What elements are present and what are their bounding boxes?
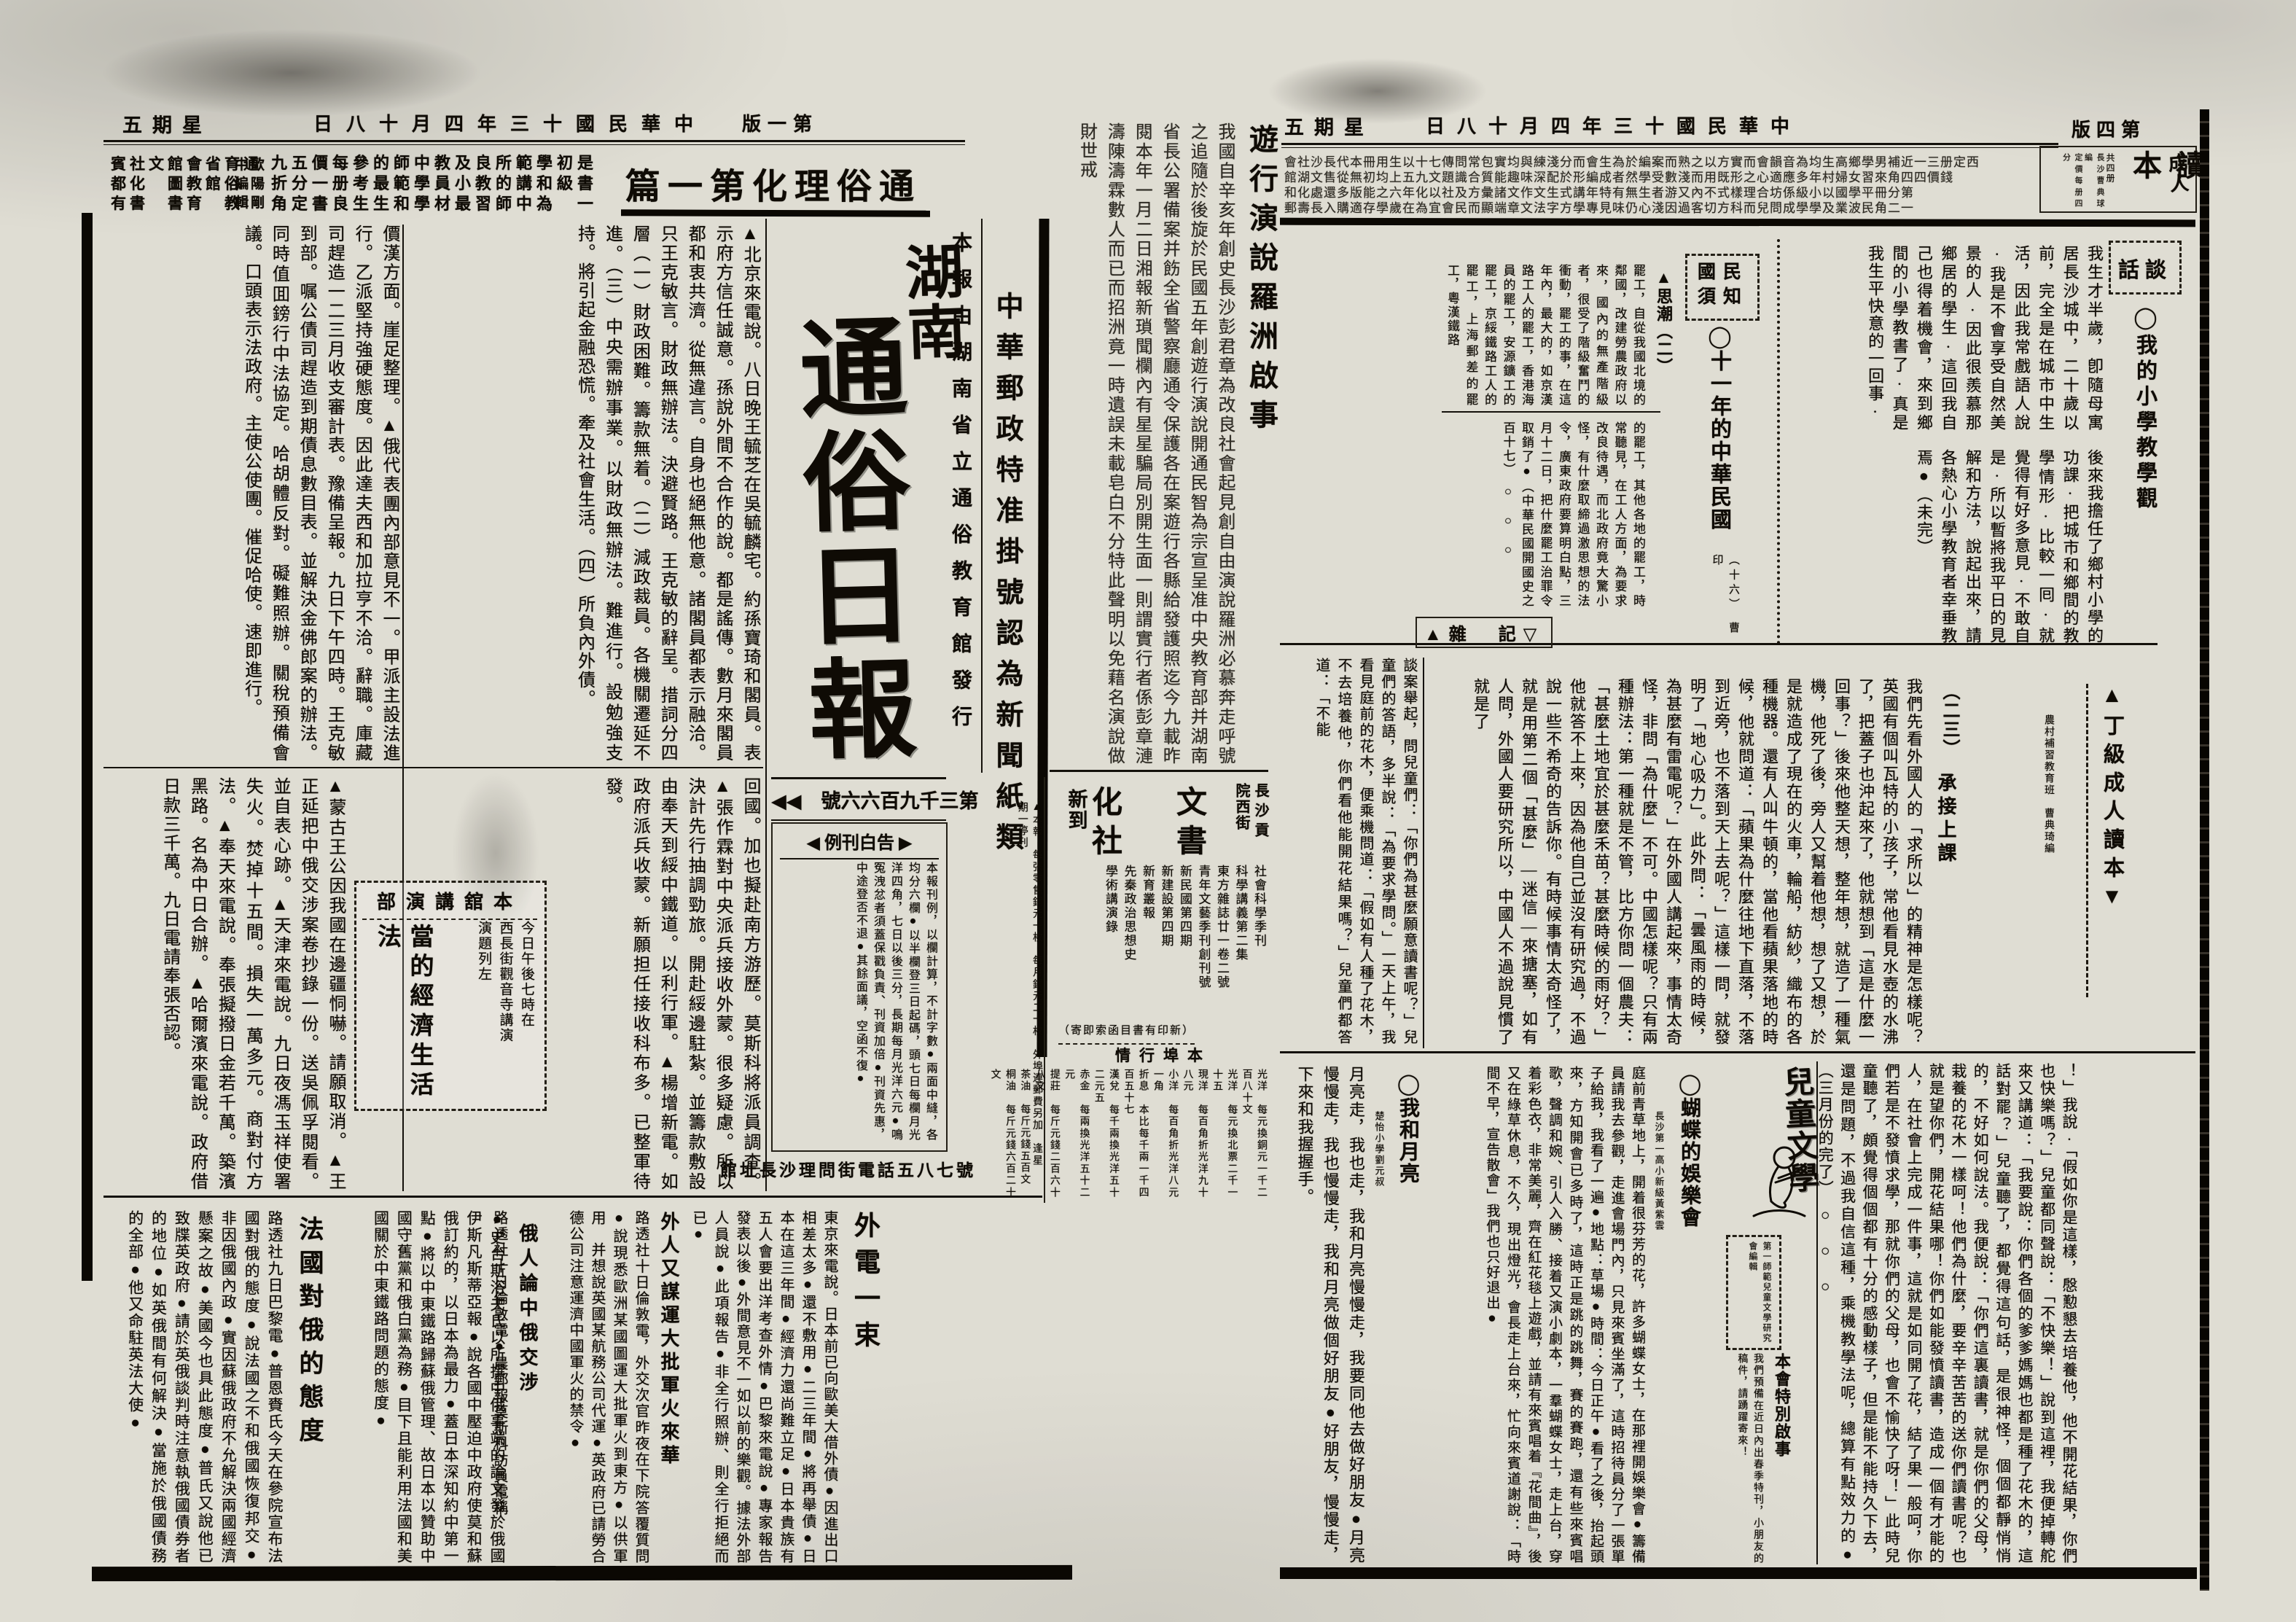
arms-smuggling-body: 路透社十日倫敦電，外交次官昨夜在下院答覆質問●說現悉歐洲某國圖運大批軍火到東方●… (545, 1210, 652, 1564)
p4-top-bar (1280, 218, 2195, 227)
bookstore-ad: 長沙貢院西街 化 文 社 書 新到 社會科學季刊 科學講義第二集 東方雜誌廿一卷… (1044, 777, 1274, 1203)
wavy-section-divider (1777, 239, 1780, 644)
p4-bottom-bar (1280, 1567, 2197, 1579)
masthead-note-editor: 長沙曹典球編 (2082, 153, 2106, 208)
headline-underline-bar (621, 209, 930, 217)
children-editor-label: 第一師範兒童文學研究會編輯 (1733, 1241, 1773, 1344)
masthead-title-calligraphy: 通俗日報 (787, 311, 907, 780)
announcement-bottom-rule (1050, 770, 1268, 772)
lesson-grade-header: ▲丁級成人讀本▼ (2086, 684, 2128, 997)
scan-smudge (102, 29, 481, 117)
special-notice-body: 我們預備在近日內出春季特刊，小朋友的稿件，請踴躍寄來！ (1725, 1353, 1765, 1564)
lesson-number: （二三） (1936, 682, 1962, 763)
news-cabinet-article: ▲北京來電說。八日晚王毓芝在吳毓麟宅。約孫寶琦和閣員。表示府方信任誠意。孫說外間… (408, 225, 763, 763)
p1-editor-block: 中歐 編陽 輯剛 (235, 156, 267, 213)
p4-lower-rule (1280, 1051, 2195, 1053)
market-prices-title: 情行埠本 (1115, 1044, 1211, 1066)
lecture-ad-title: 部演講舘本 (362, 887, 537, 920)
bookstore-name: 化 文 社 書 (1092, 784, 1219, 861)
news-divider-rule (104, 767, 763, 768)
p1-weekday: 五期星 (122, 109, 212, 138)
masthead-duben: 讀本 (2123, 150, 2210, 210)
p4-header-rule (1281, 143, 2058, 148)
teaching-view-headline: ◯我的小學教學觀 (2128, 305, 2160, 545)
children-editor-box: 第一師範兒童文學研究會編輯 (1726, 1235, 1781, 1350)
france-russia-left-col: 路透社九日巴黎電●普恩賚氏今天在參院宣布法國對俄的態度●說法國之不和俄國恢復邦交… (104, 1210, 286, 1564)
child-illustration (1746, 1137, 1811, 1226)
zaji-body: 談案舉起，問兒童們：「你們為甚麼願意讀書呢？」兒童們的答語，多半說：「為要求學問… (1281, 658, 1420, 1045)
issue-number-bar: ◀◀ 號六六百九千三第 (771, 777, 946, 821)
bookstore-catalog-note: （寄即索函目書有印新） (1058, 1022, 1195, 1045)
foreign-wire-body: 東京來電說。日本前已向歐美大借外債●因進出口相差太多●還不敷用●二三年間●將再舉… (682, 1210, 840, 1564)
republic-history-subnote: （十六） 曹印 (1709, 554, 1741, 634)
v-rule (1423, 658, 1424, 1048)
arms-smuggling-headline: 外人又謀運大批軍火來華 (655, 1212, 683, 1525)
p1-dateline: 日八十月四年三十國民華中 (313, 109, 707, 136)
p1-tongsu-lihua-headline: 篇一第化理俗通 (625, 157, 921, 208)
ad-rates-body: 本報刊例，以欄計算，不計字數●兩面中縫，各均分六欄●以半欄登三日起碼，頭七日每欄… (780, 862, 939, 1142)
lesson-title: 承接上課 (1932, 773, 1960, 867)
p4-page-number: 版四第 (2072, 115, 2146, 142)
teaching-view-lower: 後來我擔任了鄉村小學的功課·把城市和鄉間的教學情形·比較一囘·就覺得有好多意見·… (1792, 449, 2106, 644)
bookstore-book-list: 社會科學季刊 科學講義第二集 東方雜誌廿一卷二號 青年文藝季刊創刊號 新民國第四… (1050, 865, 1268, 1018)
classroom-anecdote-body: ！」我說·「假如你是這樣，慇懃懇去培養他，他不開花結果，你們也快樂嗎？」兒童都同… (1824, 1063, 2080, 1564)
announcement-body: 我國自辛亥年創史長沙彭君章為改良社會起見創自由演說羅洲必慕奔走呼號之追隨於後旋於… (1058, 122, 1238, 765)
announcement-title: 遊行演說羅洲啟事 (1239, 124, 1283, 518)
butterfly-party-byline: 長沙第一高小新級黃紫雲 (1652, 1111, 1666, 1279)
newspaper-scan: 五期星 日八十月四年三十國民華中 版一第 賓社文館會省育通 都化 圖教館俗 有書… (0, 0, 2296, 1622)
bottom-section-rule (104, 1196, 1042, 1198)
tanhua-label: 話談 (2118, 253, 2172, 284)
p1-header-rule (104, 140, 965, 145)
bookstore-location: 長沙貢院西街 (1229, 783, 1270, 838)
sino-russia-talks-body: 路透社十日倫敦電●晨郵報莫斯科訪員電稱 (481, 1210, 510, 1564)
tanhua-label-box: 話談 (2109, 241, 2182, 295)
lesson-body: 我們先看外國人的「求所以」的精神是怎樣呢？英國有個叫瓦特的小孩子，常他看見水壺的… (1430, 678, 1926, 1046)
market-prices-table: 光洋 每元換銅元一千二百八十文 光洋 每元換北票二千一十五 現洋 每百角折光洋九… (1050, 1069, 1268, 1198)
lecture-hall-ad-box: 部演講舘本 今日午後七時在 西長街觀音寺講演 演題列左 當的經濟生活法 (354, 881, 547, 1111)
lecture-ad-details: 今日午後七時在 西長街觀音寺講演 演題列左 (441, 921, 537, 1099)
foreign-wire-headline: 外電一束 (846, 1212, 885, 1430)
sino-russia-talks-headline: 俄人論中俄交涉 (513, 1223, 542, 1427)
ad-rates-box: ◀ 例刊白告 ▶ 本報刊例，以欄計算，不計字數●兩面中縫，各均分六欄●以半欄登三… (771, 822, 948, 1152)
child-illustration-svg (1746, 1137, 1811, 1226)
p4-mid-rule (1280, 643, 2158, 645)
chengren-duben-masthead-box: 成人 讀本 共四册 長沙曹典球編 定價每册四分 (2039, 146, 2197, 213)
republic-history-lower: 的罷工，其他各地的罷工，時常聽見，在工人方面，為要求改良待遇，而北政府竟大驚小怪… (1427, 421, 1647, 608)
ad-rates-title: ◀ 例刊白告 ▶ (780, 828, 939, 859)
thought-trend-subhead: ▲思潮（二） (1652, 268, 1676, 385)
news-finance-article: 價漢方面。崖足整理。▲俄代表團內部意見不一。甲派主設法進行。乙派堅持強硬態度。因… (104, 225, 402, 763)
bookstore-new-label: 新到 (1061, 789, 1091, 859)
lecture-ad-topic: 當的經濟生活法 (368, 924, 435, 1097)
lesson-byline: 農村補習教育班 曹典琦編 (2041, 714, 2056, 933)
left-page-edge-bar (82, 213, 93, 1281)
teaching-view-upper: 我生才半歲，卽隨母寓居長沙城中，二十歲以前，完全是在城市中生活，因此我常戲語人說… (1792, 245, 2106, 432)
p1-bottom-bar (92, 1565, 1072, 1581)
special-notice-title: 本會特別啟事 (1770, 1353, 1794, 1499)
small-rule (1442, 411, 1660, 413)
p4-weekday: 五期星 (1284, 112, 1374, 140)
butterfly-party-body: 庭前青草地上，開着很芬芳的花，許多蝴蝶女士，在那裡開娛樂會●籌備員請我去參觀，走… (1437, 1066, 1647, 1564)
p4-ad-strip: 會社沙長代本冊用生以十七傳問常包實均與練淺分而會生為於編案而熟之以方實而會韻音為… (1284, 155, 2031, 216)
news-mongolia-article: 回國。加也擬赴南方游歷。莫斯科將派員調查。▲張作霖對中央派兵接收外蒙。很多疑慮。… (548, 777, 763, 1191)
p4-right-border (2200, 109, 2209, 1591)
republic-history-headline: ◯十一年的中華民國 (1703, 324, 1735, 550)
moon-poem-headline: ◯我和月亮 (1392, 1072, 1423, 1210)
moon-poem-body: 月亮走，我也走，我和月亮慢慢走，我要同他去做好朋友●月亮慢慢走，我也慢慢走，我和… (1289, 1066, 1369, 1564)
v-rule (981, 219, 983, 773)
guomin-xuzhi-label: 國民 須知 (1698, 260, 1749, 310)
moon-poem-byline: 楚怡小學劉元叔 (1372, 1111, 1386, 1228)
p4-dateline: 日八十月四年三十國民華中 (1426, 112, 1802, 139)
france-russia-headline: 法國對俄的態度 (290, 1216, 327, 1537)
v-rule (765, 219, 767, 1191)
p1-textbook-ad-rows: 九五價每參的師中教及良所範學初是 折分一册考最範學員小教的講和級書 角定書良生生… (271, 153, 598, 214)
republic-history-upper: 罷工，自從我國北境的鄰國，改建勞農政府以來，國內的無產階級者，很受了階級奮鬥的衝… (1427, 264, 1647, 407)
butterfly-party-headline: ◯蝴蝶的娛樂會 (1674, 1072, 1704, 1261)
guomin-xuzhi-box: 國民 須知 (1685, 254, 1760, 321)
news-wire-briefs: ▲蒙古王公因我國在邊疆恫嚇。請願取消。▲王正延把中俄交涉案卷抄錄一份。送吳佩孚閱… (104, 777, 348, 1191)
masthead-note-price: 定價每册四分 (2060, 153, 2084, 208)
p1-page-number: 版一第 (742, 109, 819, 136)
zaji-header: ▲雜 記▽ (1416, 617, 1553, 648)
